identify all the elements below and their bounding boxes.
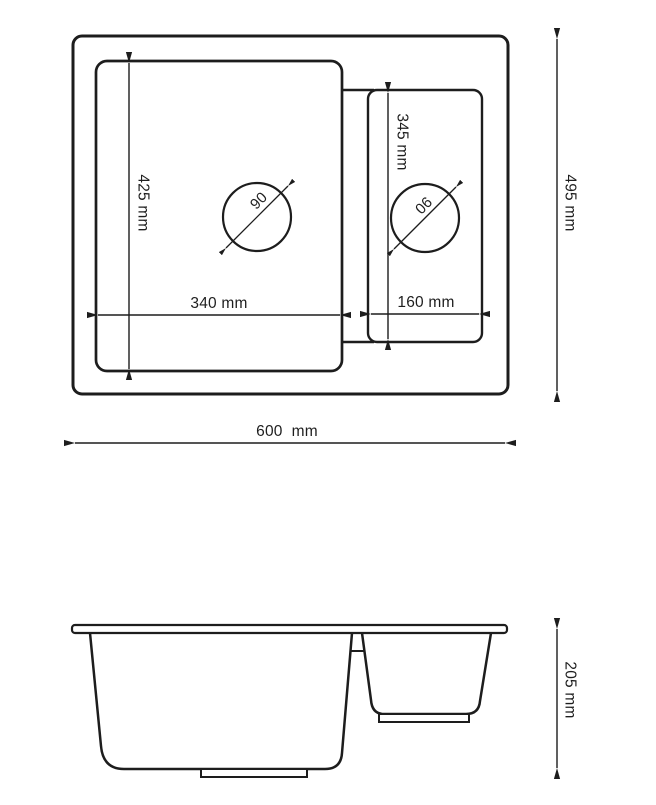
dim-overall-height: 205 mm <box>557 629 579 768</box>
side-rim-profile <box>72 625 507 633</box>
top-view: 425 mm 340 mm 90 345 mm 160 mm 90 <box>73 36 579 443</box>
dim-label-half-bowl-width: 160 mm <box>397 294 454 311</box>
side-main-bowl-drain-boss <box>201 769 307 777</box>
dim-label-main-bowl-depth: 425 mm <box>135 174 152 231</box>
dim-overall-width: 600 mm <box>75 423 505 443</box>
dim-label-overall-height: 205 mm <box>562 661 579 718</box>
dim-label-overall-depth: 495 mm <box>562 174 579 231</box>
side-view: 205 mm <box>72 625 579 777</box>
dim-label-overall-width: 600 mm <box>256 423 318 440</box>
dim-label-half-bowl-depth: 345 mm <box>394 113 411 170</box>
side-half-bowl-drain-boss <box>379 714 469 722</box>
dim-overall-depth: 495 mm <box>557 39 579 391</box>
sink-technical-drawing: 425 mm 340 mm 90 345 mm 160 mm 90 <box>0 0 656 800</box>
side-half-bowl-profile <box>362 633 491 714</box>
dim-label-main-bowl-width: 340 mm <box>190 295 247 312</box>
drawing-svg: 425 mm 340 mm 90 345 mm 160 mm 90 <box>0 0 656 800</box>
side-main-bowl-profile <box>90 633 352 769</box>
